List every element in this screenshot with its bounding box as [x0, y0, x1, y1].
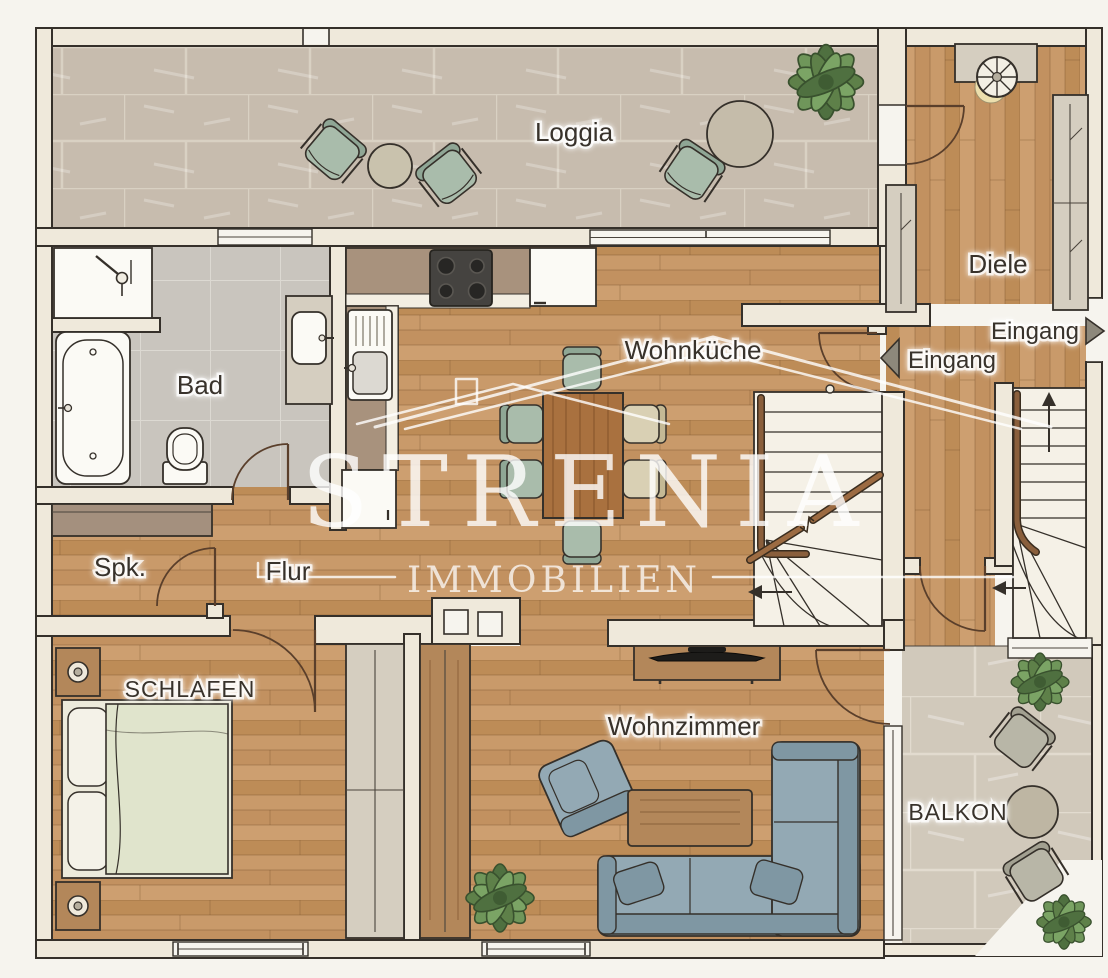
- double-bed: [62, 700, 232, 878]
- entrance-label-left: Eingang: [908, 347, 996, 374]
- entrance-label-right: Eingang: [991, 318, 1079, 345]
- livingroom-window: [482, 942, 590, 956]
- room-label-bad: Bad: [177, 370, 223, 400]
- loggia-table: [707, 101, 773, 167]
- stair-window: [1008, 638, 1092, 658]
- nightstand: [56, 648, 100, 696]
- nightstand: [56, 882, 100, 930]
- potted-plant: [1037, 895, 1091, 949]
- bedroom-wardrobe: [346, 644, 404, 938]
- bedroom-window: [173, 942, 308, 956]
- bathroom-sink: [286, 296, 334, 404]
- balcony-table: [1006, 786, 1058, 838]
- bathtub: [56, 332, 130, 484]
- room-label-wohnzimmer: Wohnzimmer: [608, 711, 761, 741]
- room-label-diele: Diele: [968, 249, 1027, 279]
- loggia-sliding-door: [590, 230, 830, 245]
- stove: [430, 250, 492, 306]
- shower: [54, 248, 152, 318]
- side-table: [368, 144, 412, 188]
- room-label-schlafen: SCHLAFEN: [125, 676, 256, 702]
- floor-plan-drawing: STRENIA IMMOBILIEN Loggia Diele Bad Wohn…: [0, 0, 1108, 978]
- entrance-right: Eingang: [991, 318, 1104, 345]
- livingroom-wardrobe: [420, 644, 470, 938]
- potted-plant: [466, 864, 534, 932]
- coffee-table: [628, 790, 752, 846]
- potted-plant: [1011, 653, 1069, 711]
- toilet: [163, 428, 207, 484]
- potted-plant: [789, 45, 864, 120]
- room-label-wohnkueche: Wohnküche: [625, 335, 762, 365]
- wardrobe: [1053, 95, 1088, 310]
- room-label-loggia: Loggia: [535, 117, 614, 147]
- watermark-division: IMMOBILIEN: [407, 560, 701, 601]
- kitchen-sink: [344, 310, 392, 400]
- room-label-balkon: BALKON: [908, 799, 1007, 825]
- tv-sideboard: [634, 646, 780, 684]
- pantry-shelf: [52, 504, 212, 536]
- bath-window: [218, 229, 312, 245]
- floor-plan-page: STRENIA IMMOBILIEN Loggia Diele Bad Wohn…: [0, 0, 1108, 978]
- room-label-spk: Spk.: [94, 552, 146, 582]
- balcony-window-door: [884, 726, 902, 940]
- coat-cabinet: [886, 185, 916, 312]
- watermark-brand: STRENIA: [301, 436, 872, 550]
- fridge: [530, 248, 596, 306]
- room-label-flur: Flur: [266, 556, 311, 586]
